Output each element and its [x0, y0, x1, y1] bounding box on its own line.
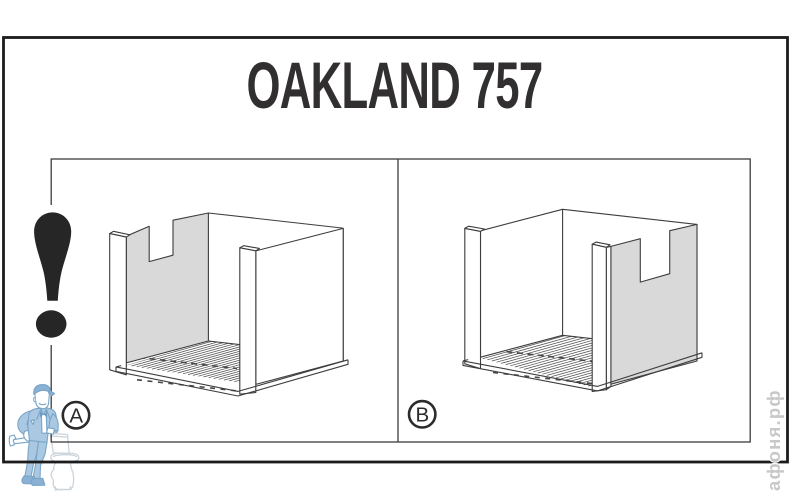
svg-text:A: A — [69, 405, 83, 428]
svg-text:афоня.рф: афоня.рф — [763, 389, 784, 491]
svg-text:OAKLAND 757: OAKLAND 757 — [246, 49, 542, 122]
svg-text:B: B — [416, 404, 430, 427]
